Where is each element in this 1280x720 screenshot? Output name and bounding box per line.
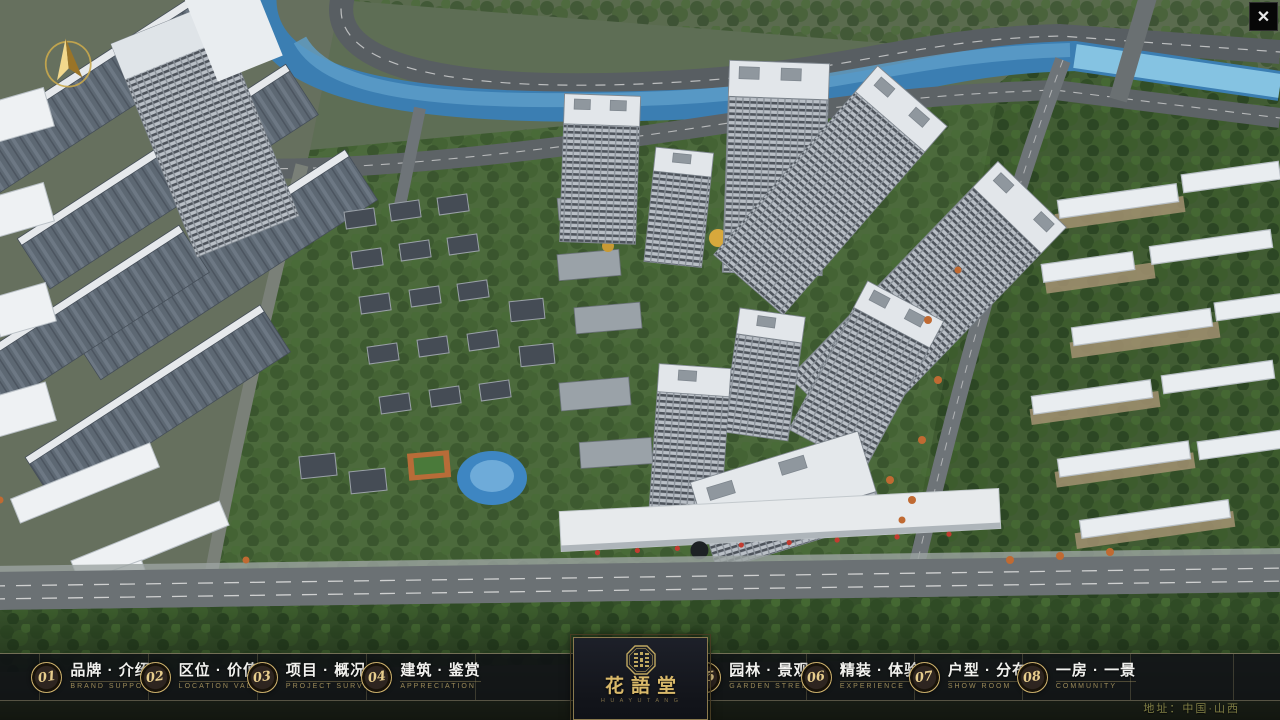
nav-item-floorplans[interactable]: 07 户型 · 分布 SHOW ROOM bbox=[915, 654, 1023, 700]
nav-badge-04: 04 bbox=[361, 662, 392, 693]
nav-badge-02: 02 bbox=[140, 662, 171, 693]
nav-spacer bbox=[1131, 654, 1234, 700]
nav-badge-01: 01 bbox=[31, 662, 62, 693]
nav-item-brand[interactable]: 01 品牌 · 介绍 BRAND SUPPORT bbox=[40, 654, 149, 700]
seal-emblem-icon bbox=[626, 645, 656, 675]
nav-item-garden[interactable]: 05 园林 · 景观 GARDEN STREET bbox=[699, 654, 807, 700]
nav-spacer bbox=[1234, 654, 1279, 700]
presentation-window: ✕ 01 品牌 · 介绍 BRAND SUPPORT 02 区位 · 价值 LO… bbox=[0, 0, 1280, 720]
project-name-latin: H U A Y U T A N G bbox=[601, 699, 680, 705]
nav-label-zh: 建筑 · 鉴赏 bbox=[400, 663, 480, 680]
close-button[interactable]: ✕ bbox=[1249, 2, 1278, 31]
nav-item-project[interactable]: 03 项目 · 概况 PROJECT SURVEY bbox=[258, 654, 367, 700]
project-address: 地址：中国·山西 bbox=[1143, 700, 1240, 716]
compass-icon bbox=[38, 32, 98, 92]
nav-badge-07: 07 bbox=[909, 662, 940, 693]
project-name: 花語堂 bbox=[598, 677, 683, 696]
nav-item-interior[interactable]: 06 精装 · 体验 EXPERIENCE bbox=[807, 654, 915, 700]
project-logo-plaque[interactable]: 花語堂 H U A Y U T A N G bbox=[573, 637, 708, 720]
nav-badge-03: 03 bbox=[247, 662, 278, 693]
sports-court bbox=[407, 450, 451, 481]
aerial-render bbox=[0, 0, 1280, 720]
nav-label-en: SHOW ROOM bbox=[948, 681, 1028, 691]
nav-badge-08: 08 bbox=[1017, 662, 1048, 693]
nav-label-en: COMMUNITY bbox=[1056, 681, 1136, 691]
nav-item-views[interactable]: 08 一房 · 一景 COMMUNITY bbox=[1023, 654, 1131, 700]
nav-badge-06: 06 bbox=[801, 662, 832, 693]
nav-label-zh: 一房 · 一景 bbox=[1056, 663, 1136, 680]
nav-item-architecture[interactable]: 04 建筑 · 鉴赏 APPRECIATION bbox=[367, 654, 476, 700]
nav-item-location[interactable]: 02 区位 · 价值 LOCATION VALUE bbox=[149, 654, 258, 700]
nav-label-en: EXPERIENCE bbox=[840, 681, 920, 691]
nav-label-en: APPRECIATION bbox=[400, 681, 480, 691]
